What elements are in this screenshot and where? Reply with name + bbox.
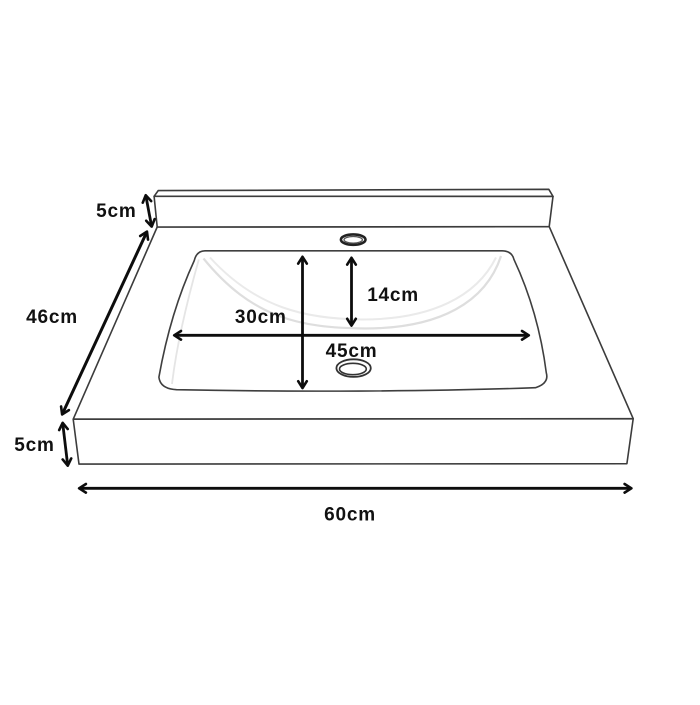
svg-text:30cm: 30cm [235,307,287,328]
svg-text:60cm: 60cm [324,505,376,526]
svg-text:14cm: 14cm [367,285,419,306]
svg-text:45cm: 45cm [326,341,378,362]
svg-text:5cm: 5cm [96,201,136,222]
svg-text:5cm: 5cm [14,435,54,456]
svg-text:46cm: 46cm [26,307,78,328]
